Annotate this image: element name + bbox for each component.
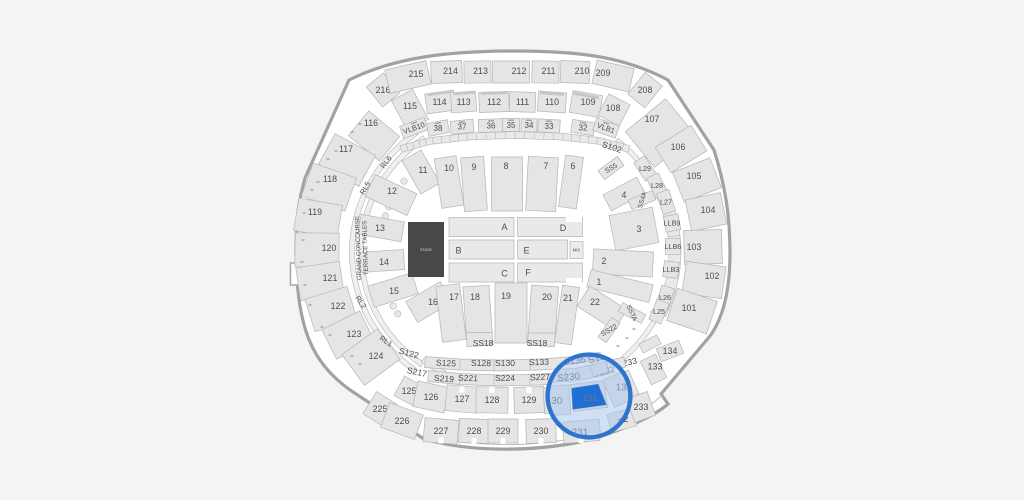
svg-text:37: 37: [458, 123, 467, 132]
svg-text:L29: L29: [639, 164, 651, 173]
svg-text:16: 16: [428, 297, 438, 307]
svg-text:8: 8: [504, 161, 509, 171]
svg-text:120: 120: [322, 243, 337, 253]
svg-text:E: E: [523, 246, 529, 256]
svg-text:SS18: SS18: [473, 338, 494, 348]
svg-text:32: 32: [579, 123, 588, 132]
svg-text:209: 209: [596, 68, 611, 78]
svg-text:36: 36: [487, 121, 496, 130]
svg-text:1: 1: [597, 277, 602, 287]
svg-text:127: 127: [455, 394, 470, 404]
svg-text:215: 215: [409, 69, 424, 79]
svg-text:124: 124: [369, 351, 384, 361]
svg-text:114: 114: [432, 97, 446, 107]
svg-text:S128: S128: [471, 358, 491, 368]
svg-text:22: 22: [590, 297, 600, 307]
svg-text:101: 101: [682, 303, 697, 313]
svg-text:225: 225: [373, 404, 388, 414]
svg-text:S133: S133: [529, 357, 549, 367]
svg-text:228: 228: [467, 426, 482, 436]
svg-text:119: 119: [308, 207, 322, 217]
svg-text:STAGE: STAGE: [420, 248, 433, 252]
svg-text:9: 9: [472, 162, 477, 172]
svg-text:21: 21: [563, 293, 573, 303]
svg-text:S219: S219: [434, 373, 455, 384]
svg-text:107: 107: [645, 114, 660, 124]
svg-text:20: 20: [542, 292, 552, 302]
svg-text:214: 214: [443, 66, 458, 76]
svg-text:216: 216: [376, 85, 391, 95]
svg-text:10: 10: [444, 163, 454, 173]
svg-text:121: 121: [323, 273, 338, 283]
svg-text:6: 6: [571, 161, 576, 171]
svg-text:34: 34: [525, 121, 534, 130]
svg-text:122: 122: [331, 301, 346, 311]
svg-text:B: B: [455, 246, 461, 256]
svg-text:12: 12: [387, 186, 397, 196]
svg-text:11: 11: [418, 165, 427, 175]
svg-text:C: C: [501, 269, 508, 279]
svg-text:126: 126: [424, 392, 439, 402]
svg-text:106: 106: [671, 142, 686, 152]
svg-text:111: 111: [516, 97, 529, 107]
svg-text:17: 17: [449, 292, 459, 302]
svg-text:115: 115: [403, 101, 417, 111]
svg-text:210: 210: [575, 66, 590, 76]
svg-text:S227: S227: [530, 372, 551, 383]
svg-text:LLB3: LLB3: [663, 265, 680, 274]
svg-text:108: 108: [606, 103, 621, 113]
svg-text:133: 133: [648, 362, 663, 372]
svg-text:113: 113: [457, 97, 471, 107]
svg-text:128: 128: [485, 395, 500, 405]
svg-text:A: A: [501, 222, 507, 232]
svg-text:D: D: [560, 223, 567, 233]
svg-text:38: 38: [434, 124, 443, 133]
svg-text:129: 129: [522, 395, 537, 405]
svg-text:14: 14: [379, 257, 389, 267]
svg-text:S224: S224: [495, 373, 515, 383]
svg-text:134: 134: [663, 346, 678, 356]
svg-text:103: 103: [687, 242, 702, 252]
svg-text:105: 105: [687, 171, 702, 181]
svg-text:LLB9: LLB9: [664, 219, 681, 228]
svg-text:213: 213: [473, 66, 488, 76]
svg-text:L28: L28: [651, 181, 663, 190]
svg-text:104: 104: [701, 205, 716, 215]
svg-text:112: 112: [487, 97, 501, 107]
svg-text:L25: L25: [653, 307, 665, 316]
svg-text:S125: S125: [436, 357, 457, 368]
svg-text:2: 2: [602, 256, 607, 266]
svg-text:233: 233: [634, 402, 649, 412]
svg-text:102: 102: [705, 271, 720, 281]
svg-text:LLB6: LLB6: [665, 242, 682, 251]
svg-text:L27: L27: [660, 198, 672, 207]
svg-text:116: 116: [364, 118, 378, 128]
svg-text:4: 4: [622, 190, 627, 200]
svg-text:18: 18: [470, 292, 480, 302]
svg-text:117: 117: [339, 144, 353, 154]
svg-text:131: 131: [582, 393, 599, 404]
svg-text:208: 208: [638, 85, 653, 95]
svg-text:33: 33: [545, 122, 554, 131]
svg-text:15: 15: [389, 286, 399, 296]
svg-text:212: 212: [512, 66, 527, 76]
svg-text:SS18: SS18: [527, 338, 548, 348]
svg-text:230: 230: [534, 426, 549, 436]
svg-text:MIX: MIX: [573, 248, 581, 253]
svg-text:F: F: [525, 268, 531, 278]
svg-text:118: 118: [323, 174, 337, 184]
svg-text:S130: S130: [495, 358, 515, 368]
svg-text:229: 229: [496, 426, 511, 436]
svg-text:226: 226: [395, 416, 410, 426]
svg-text:35: 35: [507, 121, 516, 130]
svg-text:211: 211: [541, 66, 555, 76]
svg-text:19: 19: [501, 291, 511, 301]
svg-text:227: 227: [434, 426, 449, 436]
svg-text:110: 110: [545, 97, 559, 107]
svg-text:3: 3: [637, 224, 642, 234]
svg-text:123: 123: [347, 329, 362, 339]
svg-text:13: 13: [375, 223, 385, 233]
svg-text:S221: S221: [458, 373, 479, 384]
svg-text:7: 7: [544, 161, 549, 171]
svg-text:109: 109: [581, 97, 596, 107]
svg-text:125: 125: [402, 386, 417, 396]
